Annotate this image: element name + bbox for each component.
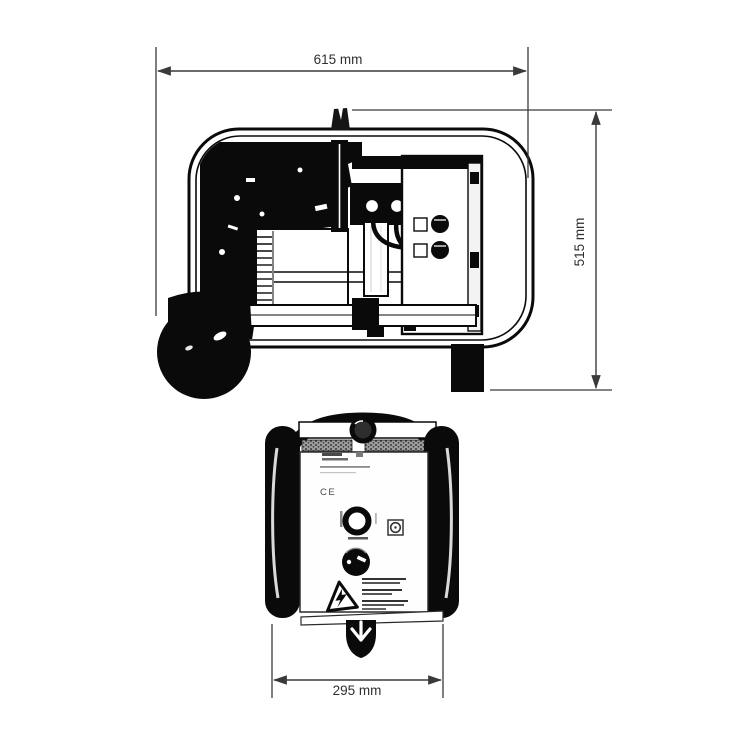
motor-highlight — [298, 168, 303, 173]
technical-drawing-page: CE — [0, 0, 750, 750]
dimension-drawing: CE — [0, 0, 750, 750]
left-frame-bar — [265, 426, 300, 618]
filler-cap — [350, 417, 377, 444]
hook-fitting — [346, 620, 376, 658]
warning-text-line — [362, 600, 408, 602]
nameplate-rule — [320, 466, 370, 468]
textured-strip — [365, 440, 433, 451]
tube-clamp — [352, 298, 379, 330]
port — [365, 199, 380, 214]
fitting-base — [414, 244, 427, 257]
dimension-label-right: 515 mm — [572, 218, 587, 267]
knob-ring — [346, 510, 369, 533]
hex-plug — [431, 215, 449, 233]
hex-plug — [431, 241, 449, 259]
knob-caption — [348, 537, 368, 540]
switch-mark — [347, 560, 351, 564]
warning-text-line — [362, 578, 406, 580]
motor-highlight — [219, 249, 225, 255]
ce-mark: CE — [320, 487, 336, 498]
power-switch — [342, 548, 370, 576]
dimension-label-top: 615 mm — [314, 52, 363, 67]
label-circle-dot — [394, 526, 396, 528]
handle-grip-tab — [331, 108, 350, 130]
round-symbol-label — [388, 520, 403, 535]
warning-text-line — [362, 608, 386, 610]
front-view-drawing: CE — [265, 417, 459, 659]
nameplate-text-line — [322, 453, 342, 456]
motor-highlight — [260, 212, 265, 217]
side-view-drawing — [157, 108, 533, 399]
panel-top-rail — [352, 156, 482, 169]
finned-cylinder — [256, 229, 416, 315]
right-frame-bar — [424, 426, 459, 618]
frame-bar — [424, 426, 459, 618]
fitting-base — [414, 218, 427, 231]
warning-text-line — [362, 589, 402, 591]
motor-highlight — [234, 195, 240, 201]
frame-bar — [265, 426, 300, 618]
nameplate-rule — [320, 472, 356, 473]
wheel — [157, 305, 251, 399]
warning-text-line — [362, 593, 392, 595]
motor-highlight — [246, 178, 255, 182]
knob-side-text — [375, 513, 377, 524]
knob-side-text — [340, 511, 343, 527]
warning-text-line — [362, 582, 400, 584]
tube-foot — [367, 326, 384, 337]
dimension-label-bottom: 295 mm — [333, 683, 382, 698]
nameplate-text-line — [322, 458, 348, 461]
support-leg — [451, 344, 484, 392]
wheel-assembly — [157, 291, 252, 399]
cap-inner — [355, 422, 372, 439]
edge-clip — [470, 252, 479, 268]
edge-clip — [470, 172, 479, 184]
corner-bracket — [404, 159, 414, 167]
textured-strip — [302, 440, 352, 451]
warning-text-line — [362, 604, 404, 606]
nameplate-mark — [356, 452, 363, 457]
